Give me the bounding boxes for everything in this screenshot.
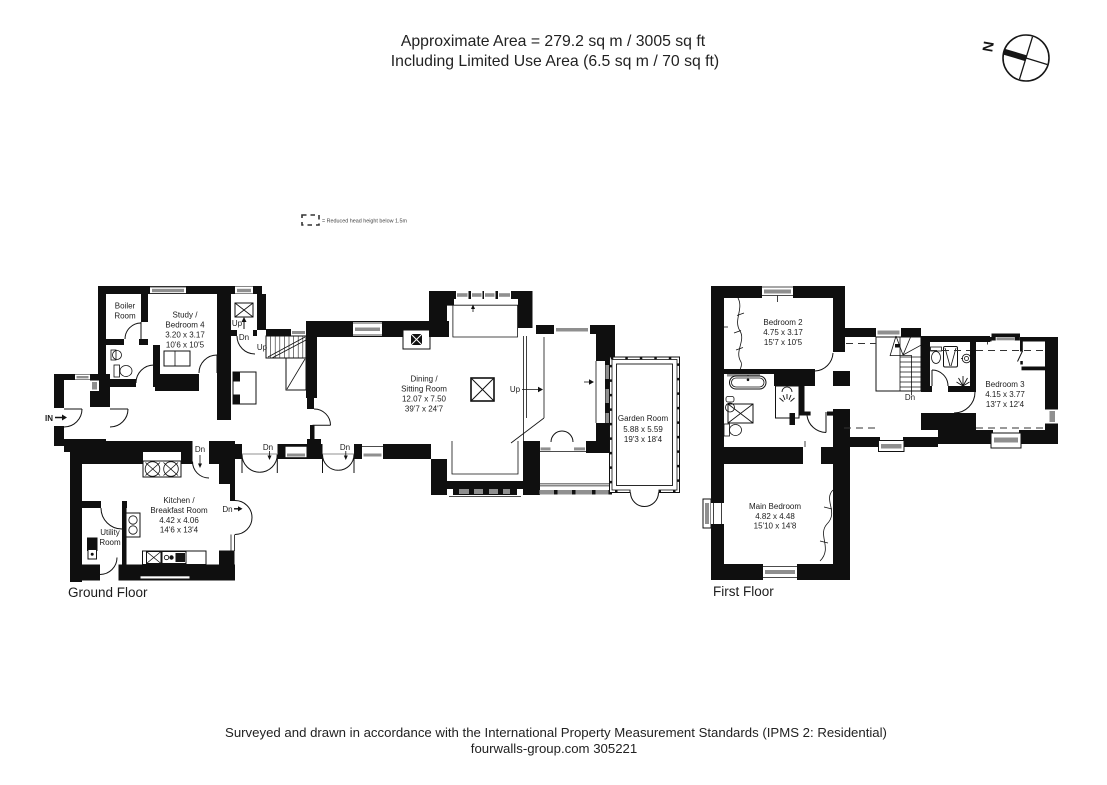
- svg-text:Dn: Dn: [340, 443, 350, 452]
- svg-text:19'3 x 18'4: 19'3 x 18'4: [624, 435, 663, 444]
- svg-text:Main Bedroom: Main Bedroom: [749, 502, 801, 511]
- svg-text:Bedroom 2: Bedroom 2: [763, 318, 803, 327]
- svg-text:Sitting Room: Sitting Room: [401, 385, 447, 394]
- svg-text:Dn: Dn: [222, 505, 232, 514]
- svg-text:4.42 x 4.06: 4.42 x 4.06: [159, 516, 199, 525]
- svg-text:Bedroom 4: Bedroom 4: [165, 321, 205, 330]
- svg-text:Up: Up: [232, 319, 243, 328]
- svg-text:4.82 x 4.48: 4.82 x 4.48: [755, 512, 795, 521]
- svg-text:3.20 x 3.17: 3.20 x 3.17: [165, 331, 205, 340]
- svg-text:12.07 x 7.50: 12.07 x 7.50: [402, 395, 447, 404]
- svg-text:Utility: Utility: [100, 528, 120, 537]
- svg-text:Dn: Dn: [905, 393, 915, 402]
- svg-text:39'7 x 24'7: 39'7 x 24'7: [405, 405, 444, 414]
- svg-text:Dining /: Dining /: [410, 375, 438, 384]
- svg-text:Study /: Study /: [173, 311, 199, 320]
- svg-text:Breakfast Room: Breakfast Room: [150, 506, 208, 515]
- svg-text:4.75 x 3.17: 4.75 x 3.17: [763, 328, 803, 337]
- svg-text:Bedroom 3: Bedroom 3: [985, 380, 1025, 389]
- svg-text:14'6 x 13'4: 14'6 x 13'4: [160, 526, 199, 535]
- svg-text:Dn: Dn: [195, 445, 205, 454]
- svg-text:5.88 x 5.59: 5.88 x 5.59: [623, 425, 663, 434]
- svg-text:10'6 x 10'5: 10'6 x 10'5: [166, 341, 205, 350]
- svg-text:Room: Room: [99, 538, 121, 547]
- svg-text:= Reduced head height below 1.: = Reduced head height below 1.5m: [322, 219, 407, 225]
- svg-text:Up: Up: [257, 343, 268, 352]
- svg-text:Approximate Area = 279.2 sq m: Approximate Area = 279.2 sq m / 3005 sq …: [401, 33, 706, 50]
- svg-text:Dn: Dn: [239, 333, 249, 342]
- svg-text:IN: IN: [45, 414, 53, 423]
- svg-text:15'10 x 14'8: 15'10 x 14'8: [754, 522, 797, 531]
- svg-text:4.15 x 3.77: 4.15 x 3.77: [985, 390, 1025, 399]
- svg-text:Dn: Dn: [263, 443, 273, 452]
- svg-text:Ground Floor: Ground Floor: [68, 585, 148, 600]
- svg-text:Up: Up: [510, 385, 521, 394]
- svg-text:Garden Room: Garden Room: [618, 414, 669, 423]
- svg-text:Boiler: Boiler: [115, 302, 136, 311]
- svg-text:First Floor: First Floor: [713, 584, 774, 599]
- svg-text:Room: Room: [114, 312, 136, 321]
- svg-text:Kitchen /: Kitchen /: [163, 496, 195, 505]
- svg-text:15'7 x 10'5: 15'7 x 10'5: [764, 338, 803, 347]
- svg-text:fourwalls-group.com 305221: fourwalls-group.com 305221: [471, 741, 637, 756]
- svg-text:Surveyed and drawn in accordan: Surveyed and drawn in accordance with th…: [225, 725, 887, 740]
- svg-text:13'7 x 12'4: 13'7 x 12'4: [986, 400, 1025, 409]
- svg-text:Including Limited Use Area (6.: Including Limited Use Area (6.5 sq m / 7…: [391, 53, 719, 70]
